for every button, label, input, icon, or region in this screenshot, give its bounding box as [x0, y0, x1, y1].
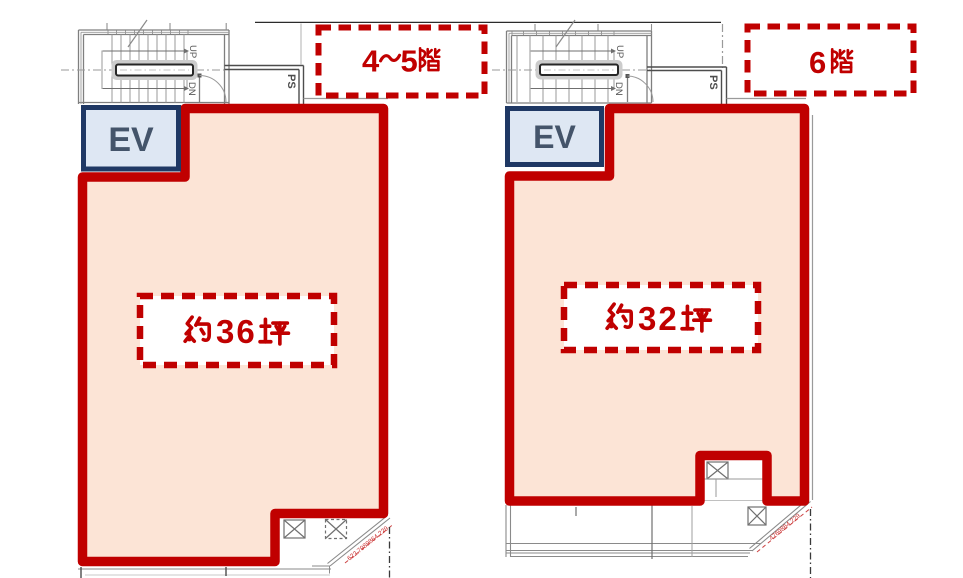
svg-text:EV: EV [533, 119, 576, 155]
svg-text:4769864.229: 4769864.229 [768, 512, 802, 542]
svg-text:32: 32 [638, 300, 679, 337]
svg-text:6: 6 [809, 45, 826, 80]
svg-text:EV: EV [108, 121, 154, 159]
svg-text:PS: PS [285, 74, 297, 89]
svg-text:5: 5 [401, 44, 418, 79]
svg-text:36: 36 [216, 313, 257, 350]
svg-text:UP: UP [614, 45, 625, 58]
svg-text:DN: DN [186, 82, 197, 96]
svg-text:UP: UP [187, 45, 198, 58]
svg-text:4: 4 [362, 44, 380, 79]
svg-text:PS: PS [707, 75, 719, 90]
svg-text:DN: DN [613, 82, 624, 96]
